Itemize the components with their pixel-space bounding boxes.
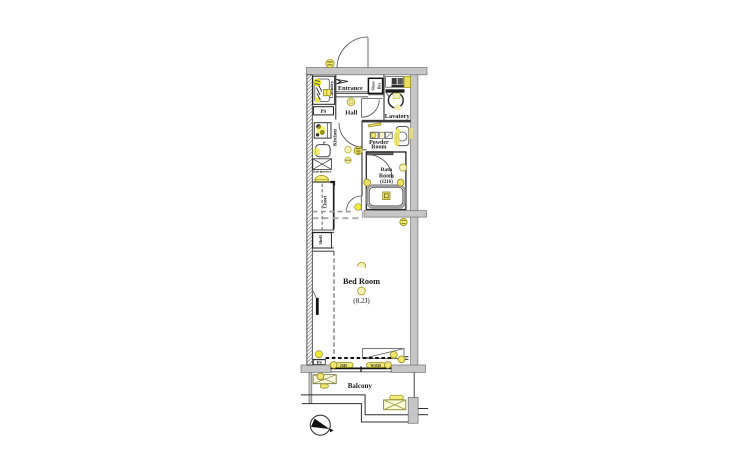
svg-text:Lavatory: Lavatory (385, 113, 411, 120)
svg-text:Refrigerator: Refrigerator (313, 170, 332, 174)
svg-text:Bed Room: Bed Room (343, 277, 380, 286)
svg-text:Laundry: Laundry (329, 80, 334, 98)
svg-text:Hall: Hall (345, 109, 357, 116)
svg-text:(1216): (1216) (380, 180, 393, 185)
svg-text:Room: Room (371, 144, 386, 150)
svg-text:Entrance: Entrance (338, 85, 363, 92)
svg-text:Kitchen: Kitchen (334, 129, 339, 146)
svg-text:W2545: W2545 (370, 364, 381, 368)
svg-text:PS: PS (320, 110, 326, 115)
svg-text:Bath: Bath (381, 167, 393, 173)
svg-text:Box: Box (378, 83, 382, 89)
svg-text:Shoes: Shoes (372, 81, 376, 91)
svg-text:Balcony: Balcony (348, 382, 373, 390)
svg-text:Room: Room (379, 173, 394, 179)
svg-text:Shelf: Shelf (318, 235, 323, 245)
svg-text:Closet: Closet (324, 195, 329, 208)
svg-text:(8.2J): (8.2J) (353, 297, 370, 305)
svg-text:2545: 2545 (340, 364, 347, 368)
svg-text:PS: PS (317, 360, 323, 365)
